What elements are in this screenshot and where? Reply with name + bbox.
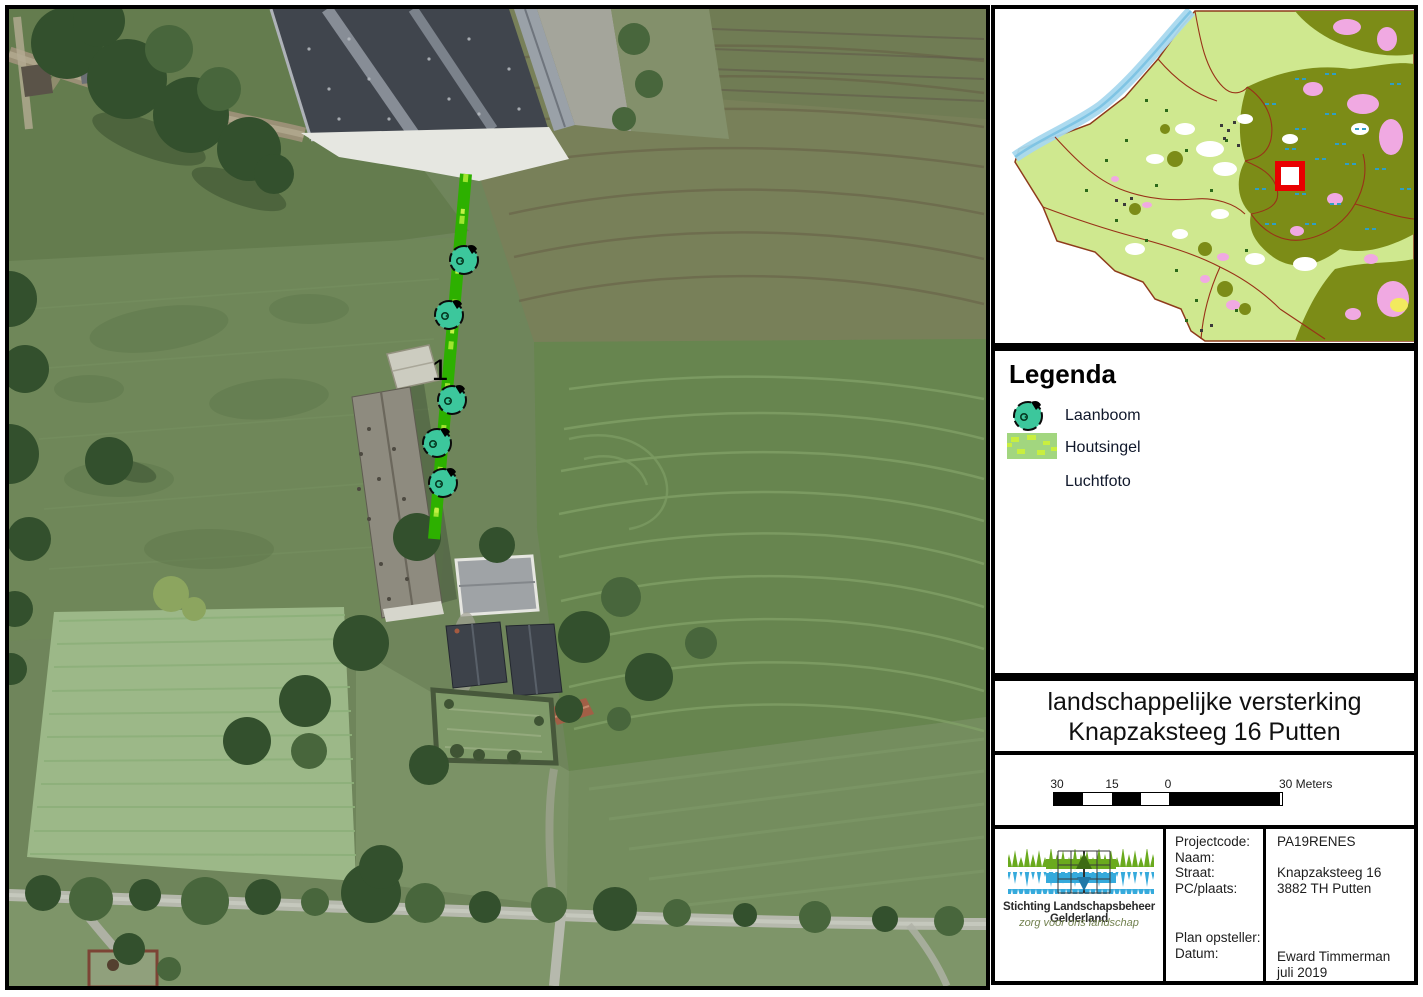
laanboom-symbol-5 bbox=[429, 468, 457, 497]
scale-tick-15: 15 bbox=[1105, 777, 1118, 791]
info-labels-cell: Projectcode: Naam: Straat: PC/plaats: Pl… bbox=[1169, 829, 1266, 981]
legend-item-houtsingel: Houtsingel bbox=[995, 433, 1414, 467]
scale-tick-30-left: 30 bbox=[1050, 777, 1063, 791]
scale-tick-30-meters: 30 Meters bbox=[1279, 777, 1332, 791]
label-naam: Naam: bbox=[1175, 850, 1250, 866]
overview-map-frame bbox=[991, 5, 1418, 347]
value-projectcode: PA19RENES bbox=[1277, 834, 1356, 850]
laanboom-symbol-3 bbox=[438, 385, 466, 414]
plan-sheet: 1 bbox=[0, 0, 1423, 997]
yellow-patch bbox=[1390, 298, 1408, 312]
label-straat: Straat: bbox=[1175, 865, 1250, 881]
logo-tagline: zorg voor ons landschap bbox=[995, 917, 1163, 929]
legend-item-luchtfoto: Luchtfoto bbox=[995, 467, 1414, 501]
houtsingel-legend-icon bbox=[1007, 433, 1057, 459]
legend-item-laanboom: Laanboom bbox=[995, 399, 1414, 433]
legend-panel: Legenda Laanboom Houtsingel Luchtfoto bbox=[991, 347, 1418, 677]
legend-label-laanboom: Laanboom bbox=[1065, 407, 1141, 425]
legend-label-luchtfoto: Luchtfoto bbox=[1065, 473, 1131, 491]
plan-area-label: 1 bbox=[432, 354, 449, 387]
aerial-photo-frame: 1 bbox=[5, 5, 990, 990]
overview-map bbox=[995, 9, 1414, 343]
label-plan-opsteller: Plan opsteller: bbox=[1175, 930, 1261, 946]
aerial-photo: 1 bbox=[9, 9, 986, 986]
scale-bar-section: 30 15 0 30 Meters bbox=[991, 755, 1418, 825]
value-straat: Knapzaksteeg 16 bbox=[1277, 865, 1381, 881]
location-marker bbox=[1278, 164, 1302, 188]
info-values-cell: PA19RENES Knapzaksteeg 16 3882 TH Putten… bbox=[1269, 829, 1414, 981]
value-opsteller: Eward Timmerman bbox=[1277, 949, 1390, 965]
label-projectcode: Projectcode: bbox=[1175, 834, 1250, 850]
label-pcplaats: PC/plaats: bbox=[1175, 881, 1250, 897]
legend-title: Legenda bbox=[1009, 359, 1116, 390]
map-title-line2: Knapzaksteeg 16 Putten bbox=[995, 717, 1414, 747]
title-block: landschappelijke versterking Knapzakstee… bbox=[991, 677, 1418, 755]
label-datum: Datum: bbox=[1175, 946, 1261, 962]
scale-tick-0: 0 bbox=[1165, 777, 1172, 791]
logo-cell: Stichting Landschapsbeheer Gelderland zo… bbox=[995, 829, 1166, 981]
info-table: Stichting Landschapsbeheer Gelderland zo… bbox=[991, 825, 1418, 985]
laanboom-legend-icon bbox=[1011, 399, 1045, 433]
scale-bar bbox=[1053, 792, 1283, 806]
value-pcplaats: 3882 TH Putten bbox=[1277, 881, 1381, 897]
laanboom-symbol-4 bbox=[423, 428, 451, 457]
legend-label-houtsingel: Houtsingel bbox=[1065, 439, 1141, 457]
slg-logo bbox=[1000, 845, 1160, 897]
laanboom-symbol-1 bbox=[450, 245, 478, 274]
value-datum: juli 2019 bbox=[1277, 965, 1390, 981]
laanboom-symbol-2 bbox=[435, 300, 463, 329]
map-title-line1: landschappelijke versterking bbox=[995, 687, 1414, 717]
